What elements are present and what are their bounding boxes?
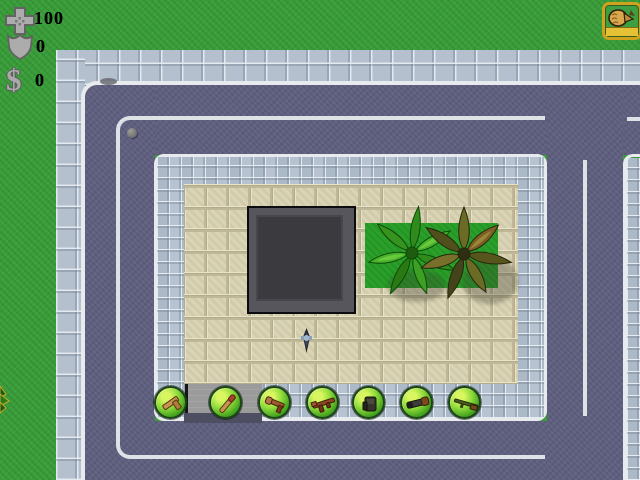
building-roof-inner [256,215,343,301]
game-viewport[interactable]: 100 0 $ 0 [0,0,640,480]
armor-shield-icon [5,32,35,60]
pickup-machine-gun[interactable] [306,386,339,419]
rocket-launcher-icon [404,390,433,419]
flamethrower-icon [356,390,385,419]
money-value: 0 [35,71,45,89]
shotgun-icon [262,390,291,419]
health-value: 100 [34,9,64,27]
pickup-rifle[interactable] [448,386,481,419]
pickup-pistol[interactable] [154,386,187,419]
ammo-bar [606,27,638,36]
club-icon [213,390,242,419]
pickup-rocket-launcher[interactable] [400,386,433,419]
building-roof [247,206,356,314]
pickup-shotgun[interactable] [258,386,291,419]
pickup-club[interactable] [209,386,242,419]
lane-divider-top-east [627,117,640,121]
lane-divider-right-road [583,160,587,416]
edge-plant [0,384,11,414]
machine-gun-icon [310,390,339,419]
pistol-icon [158,390,187,419]
armor-value: 0 [36,37,46,55]
pickup-flamethrower[interactable] [352,386,385,419]
dollar-icon: $ [6,64,22,95]
palm-tree-olive [410,200,518,308]
weapon-slot[interactable] [602,2,640,40]
road-smudge [100,78,117,85]
sidewalk-outer-top [56,50,640,85]
curb-right-road [623,154,640,480]
pebble [127,128,137,138]
rifle-icon [452,390,481,419]
player-character [298,328,315,354]
